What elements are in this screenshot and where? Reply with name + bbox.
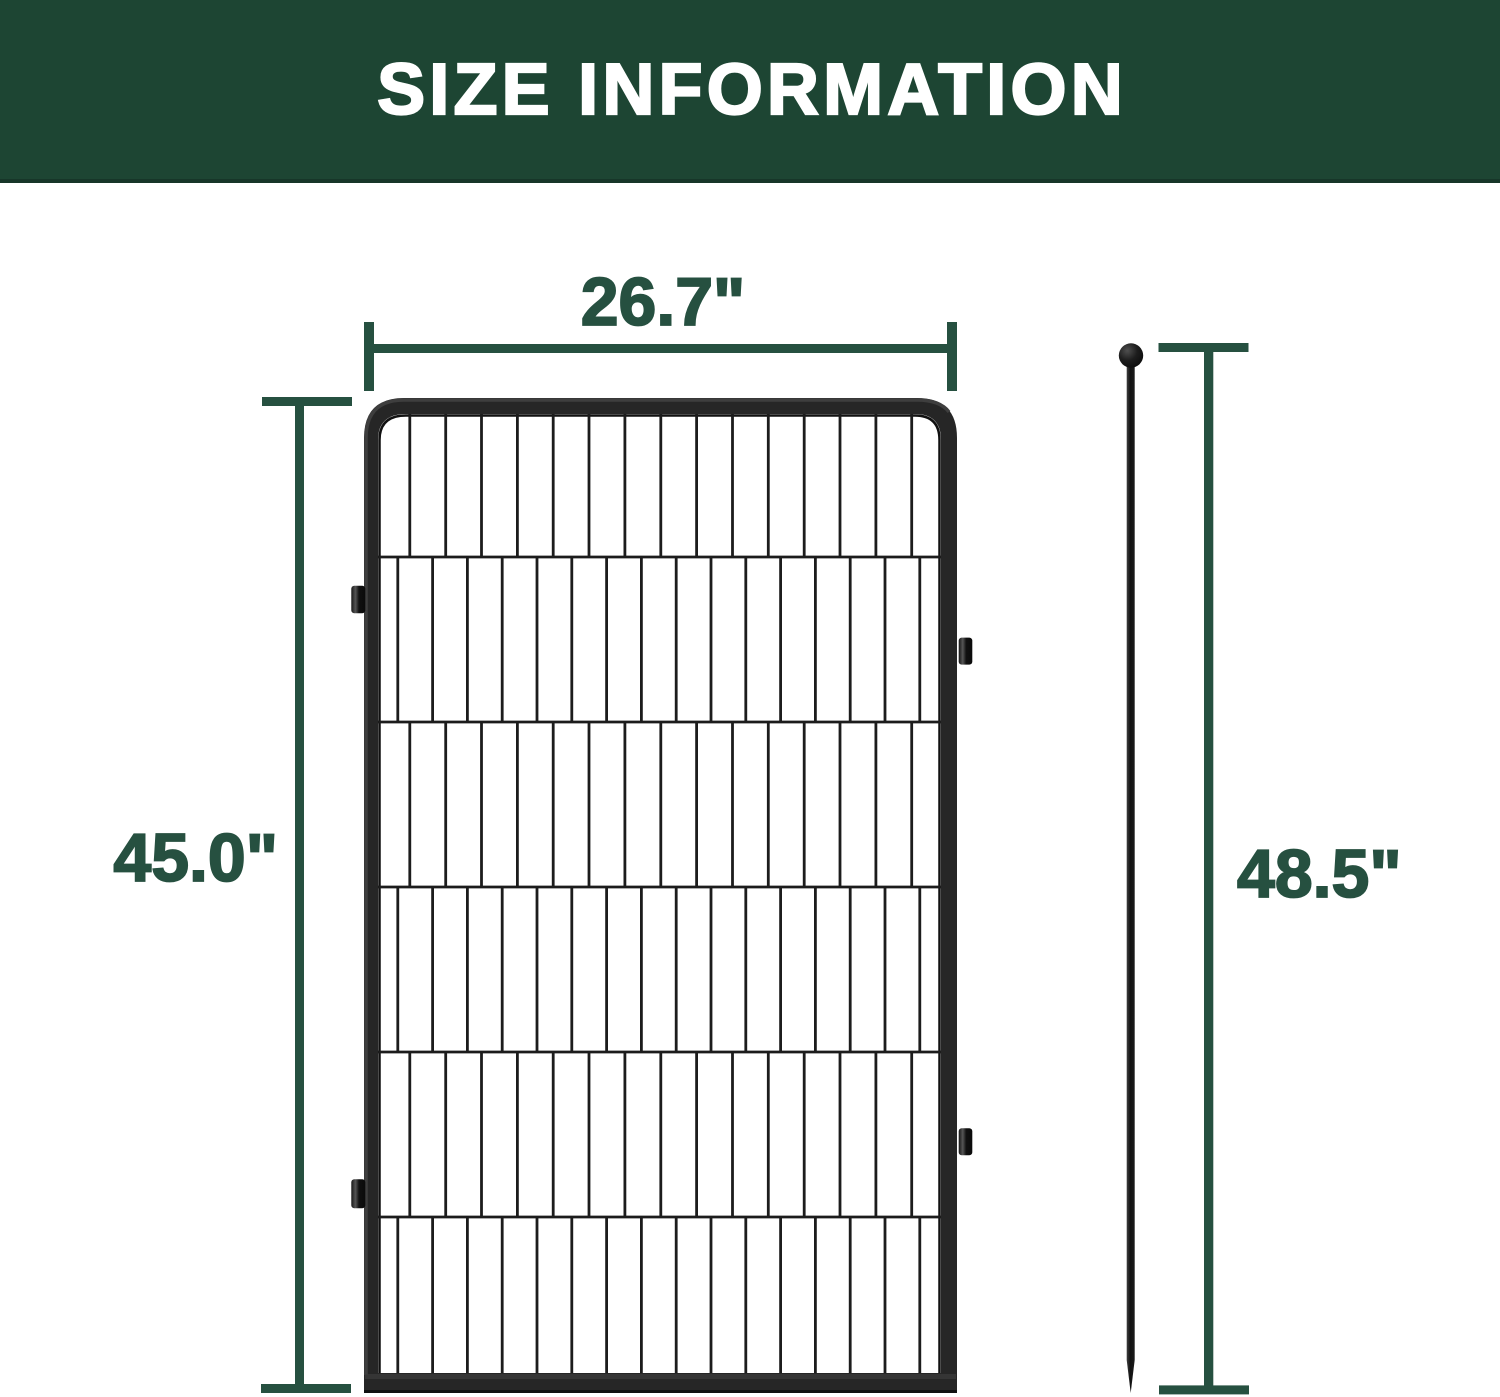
svg-text:26.7": 26.7" [581, 264, 746, 340]
svg-text:SIZE INFORMATION: SIZE INFORMATION [377, 50, 1127, 130]
svg-text:48.5": 48.5" [1237, 836, 1402, 912]
svg-text:45.0": 45.0" [113, 820, 278, 896]
